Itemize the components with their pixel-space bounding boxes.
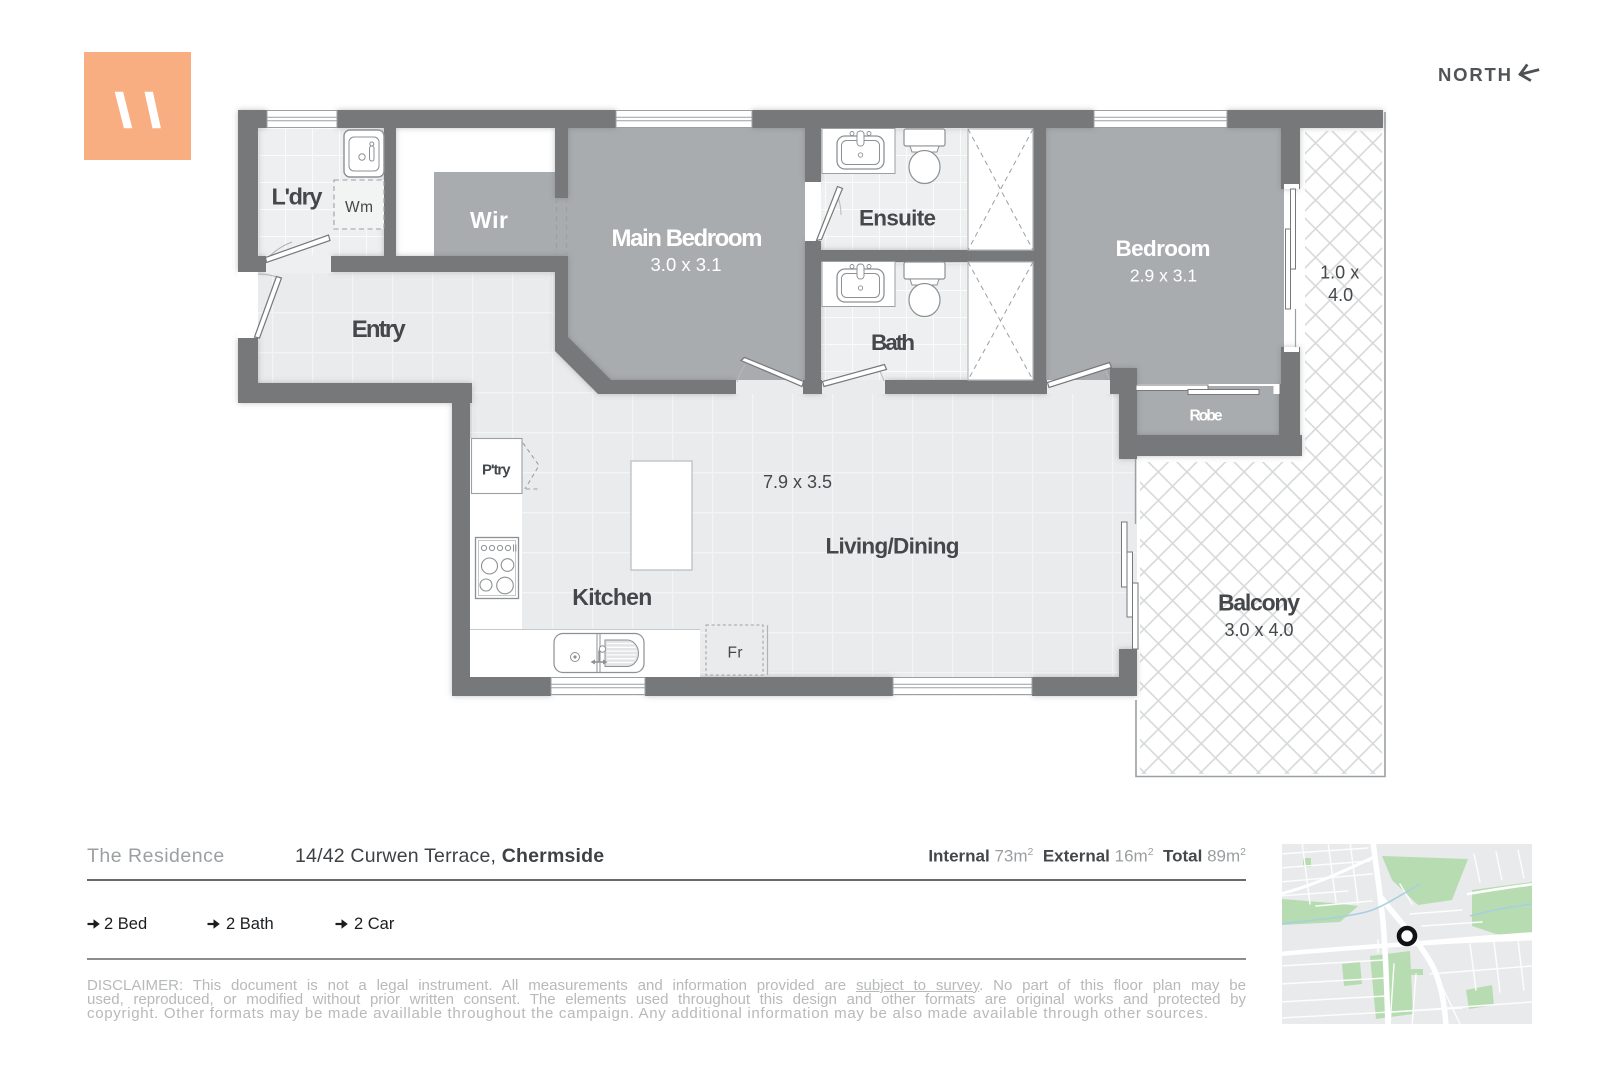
svg-text:Fr: Fr [728, 645, 743, 662]
svg-text:4.0: 4.0 [1328, 285, 1353, 305]
svg-text:P'try: P'try [482, 462, 511, 479]
svg-text:Living/Dining: Living/Dining [826, 534, 960, 559]
svg-text:Wm: Wm [345, 199, 373, 216]
svg-text:2.9 x 3.1: 2.9 x 3.1 [1130, 266, 1197, 286]
svg-text:L'dry: L'dry [272, 184, 323, 210]
svg-text:3.0 x 4.0: 3.0 x 4.0 [1224, 620, 1293, 640]
svg-text:Kitchen: Kitchen [572, 584, 652, 610]
svg-text:7.9 x 3.5: 7.9 x 3.5 [763, 472, 832, 492]
svg-text:Wir: Wir [470, 207, 508, 233]
svg-text:Ensuite: Ensuite [859, 206, 936, 231]
svg-text:Entry: Entry [352, 316, 407, 343]
svg-text:Robe: Robe [1190, 408, 1223, 425]
svg-text:1.0 x: 1.0 x [1320, 263, 1359, 283]
svg-text:Main Bedroom: Main Bedroom [612, 225, 763, 252]
svg-text:Bedroom: Bedroom [1116, 236, 1211, 261]
svg-text:Balcony: Balcony [1218, 590, 1300, 616]
svg-text:Bath: Bath [871, 330, 915, 355]
svg-text:3.0 x 3.1: 3.0 x 3.1 [651, 254, 722, 275]
